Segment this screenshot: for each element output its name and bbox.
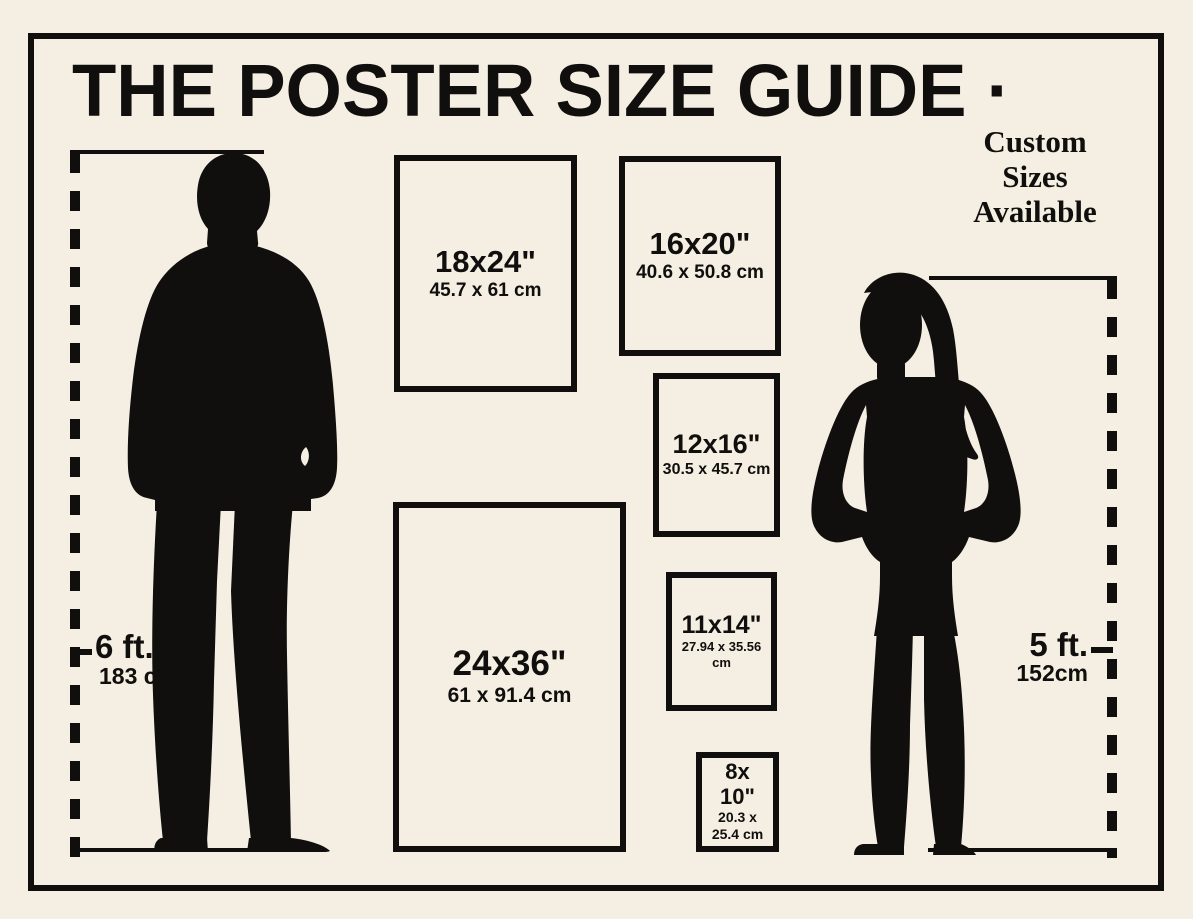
poster-size-label: 16x20" <box>650 227 751 261</box>
page-title: THE POSTER SIZE GUIDE · <box>72 54 1011 128</box>
poster-metric-label: 30.5 x 45.7 cm <box>663 460 771 480</box>
woman-height-tick <box>1091 647 1113 653</box>
man-height-tick <box>70 649 92 655</box>
poster-size-label: 12x16" <box>673 430 761 460</box>
poster-box-8x10: 8x 10" 20.3 x 25.4 cm <box>696 752 779 852</box>
poster-size-label: 8x 10" <box>720 760 755 808</box>
poster-size-guide: THE POSTER SIZE GUIDE · Custom Sizes Ava… <box>0 0 1193 919</box>
poster-metric-label: 61 x 91.4 cm <box>448 683 572 709</box>
poster-box-24x36: 24x36" 61 x 91.4 cm <box>393 502 626 852</box>
poster-size-label: 18x24" <box>435 245 536 279</box>
poster-box-18x24: 18x24" 45.7 x 61 cm <box>394 155 577 392</box>
poster-metric-label: 40.6 x 50.8 cm <box>636 261 764 285</box>
poster-metric-label: 45.7 x 61 cm <box>430 279 542 303</box>
poster-metric-label: 20.3 x 25.4 cm <box>712 809 763 844</box>
poster-box-12x16: 12x16" 30.5 x 45.7 cm <box>653 373 780 537</box>
poster-metric-label: 27.94 x 35.56 cm <box>672 639 771 672</box>
woman-silhouette-icon <box>806 271 1026 855</box>
poster-box-11x14: 11x14" 27.94 x 35.56 cm <box>666 572 777 711</box>
man-silhouette-icon <box>110 151 348 852</box>
man-height-dashed-line <box>70 153 80 858</box>
woman-height-dashed-line <box>1107 279 1117 858</box>
poster-box-16x20: 16x20" 40.6 x 50.8 cm <box>619 156 781 356</box>
poster-size-label: 24x36" <box>453 645 567 684</box>
poster-size-label: 11x14" <box>682 612 762 640</box>
custom-sizes-note: Custom Sizes Available <box>945 124 1125 229</box>
